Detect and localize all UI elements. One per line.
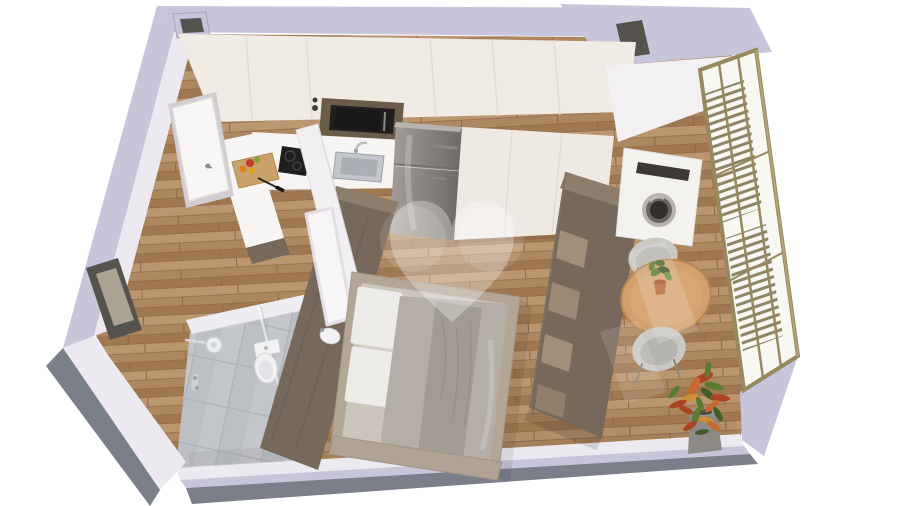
vegetable-tomato: [246, 159, 254, 167]
toilet-button: [264, 346, 268, 350]
pillow: [353, 289, 400, 347]
microwave-unit: [312, 98, 404, 141]
vegetable-green: [254, 157, 260, 163]
microwave-handle: [384, 112, 385, 131]
faucet-base: [354, 149, 358, 153]
fridge-handle: [434, 146, 456, 148]
vegetable-yellow: [249, 168, 255, 174]
laundry: [616, 148, 702, 246]
shower-head-center: [211, 342, 217, 348]
service-shaft-opening: [180, 18, 204, 33]
fridge-handle: [433, 178, 445, 179]
sink-basin: [340, 157, 378, 177]
floor-plan-render: [0, 0, 900, 506]
kitchen-jar: [312, 105, 318, 111]
kitchen-jar: [313, 98, 318, 103]
double-bed: [329, 272, 532, 482]
vegetable-orange: [240, 166, 247, 173]
floor-plan-canvas: [0, 0, 900, 506]
washer-door-glass: [650, 201, 668, 219]
vanity-faucet: [320, 328, 324, 332]
microwave-door: [334, 108, 381, 131]
